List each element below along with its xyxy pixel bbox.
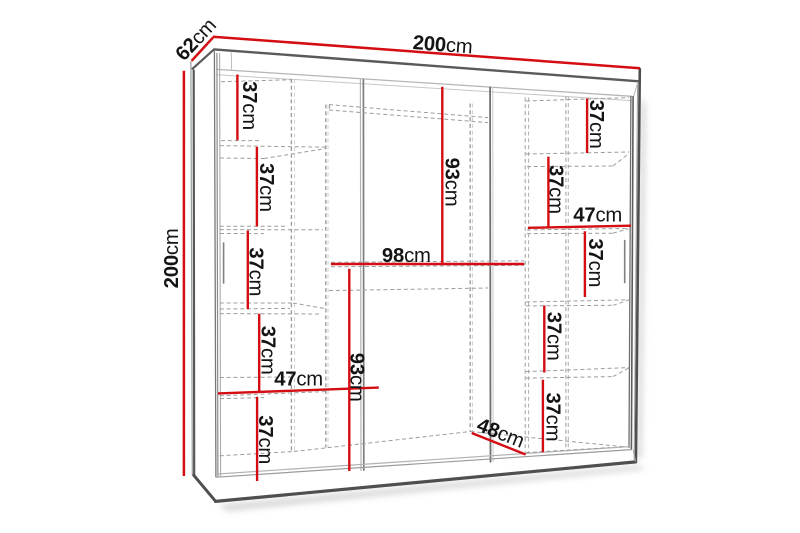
svg-text:93cm: 93cm: [441, 158, 463, 207]
svg-text:37cm: 37cm: [585, 100, 607, 149]
svg-text:37cm: 37cm: [245, 247, 267, 296]
svg-text:200cm: 200cm: [161, 228, 183, 288]
svg-text:37cm: 37cm: [544, 165, 566, 214]
svg-text:37cm: 37cm: [257, 326, 279, 375]
svg-text:37cm: 37cm: [255, 163, 277, 212]
svg-text:37cm: 37cm: [254, 415, 276, 464]
svg-text:47cm: 47cm: [573, 204, 622, 226]
svg-text:37cm: 37cm: [543, 312, 565, 361]
svg-text:93cm: 93cm: [346, 353, 368, 402]
svg-text:37cm: 37cm: [238, 81, 260, 130]
svg-text:98cm: 98cm: [382, 245, 431, 267]
svg-text:200cm: 200cm: [412, 32, 473, 58]
svg-text:47cm: 47cm: [274, 368, 323, 390]
svg-text:37cm: 37cm: [584, 238, 606, 287]
svg-text:37cm: 37cm: [541, 392, 563, 441]
